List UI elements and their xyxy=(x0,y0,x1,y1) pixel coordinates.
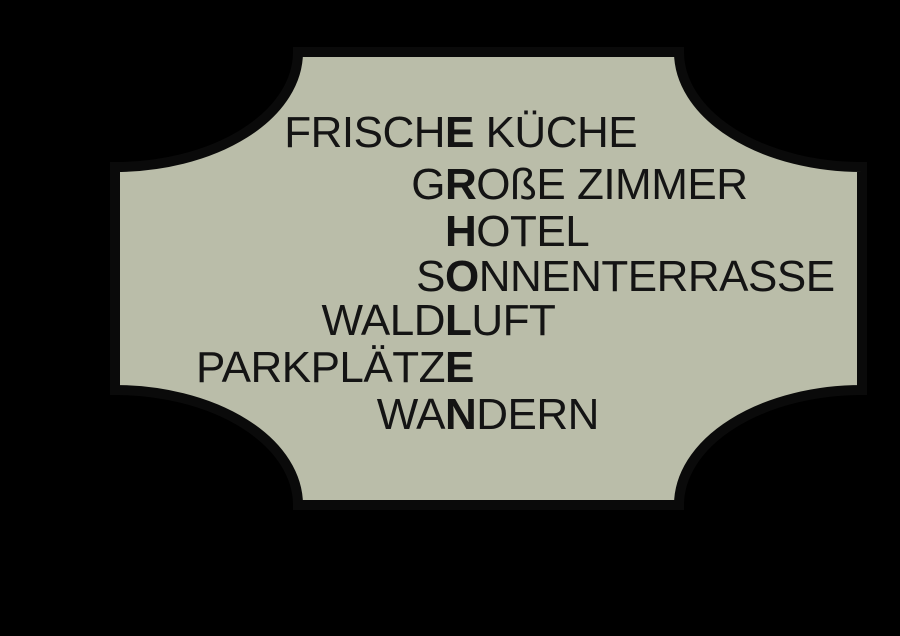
line-pre-text: FRISCH xyxy=(0,111,445,155)
line-frische-kueche: FRISCHE KÜCHE xyxy=(0,111,900,155)
line-post-text: KÜCHE xyxy=(474,108,637,157)
line-pre-text: PARKPLÄTZ xyxy=(0,346,445,390)
line-pre-text: G xyxy=(0,163,445,207)
line-parkplaetze: PARKPLÄTZE xyxy=(0,346,900,390)
line-key-letter: O xyxy=(445,252,479,301)
line-post-text: UFT xyxy=(471,296,555,345)
line-pre-text: WA xyxy=(0,393,445,437)
line-grosse-zimmer: GROßE ZIMMER xyxy=(0,163,900,207)
sign-background: FRISCHE KÜCHE GROßE ZIMMER HOTEL SONNENT… xyxy=(0,0,900,636)
line-key-letter: N xyxy=(445,390,476,439)
line-key-letter: R xyxy=(445,160,476,209)
sign-text-block: FRISCHE KÜCHE GROßE ZIMMER HOTEL SONNENT… xyxy=(0,0,900,636)
line-waldluft: WALDLUFT xyxy=(0,299,900,343)
line-key-letter: L xyxy=(445,296,471,345)
line-key-letter: H xyxy=(445,207,476,256)
line-hotel: HOTEL xyxy=(0,210,900,254)
line-key-letter: E xyxy=(445,343,474,392)
line-post-text: DERN xyxy=(476,390,599,439)
line-post-text: OTEL xyxy=(476,207,589,256)
line-key-letter: E xyxy=(445,108,474,157)
line-post-text: OßE ZIMMER xyxy=(476,160,747,209)
line-post-text: NNENTERRASSE xyxy=(479,252,835,301)
line-pre-text: S xyxy=(0,255,445,299)
line-sonnenterrasse: SONNENTERRASSE xyxy=(0,255,900,299)
line-pre-text: WALD xyxy=(0,299,445,343)
line-wandern: WANDERN xyxy=(0,393,900,437)
